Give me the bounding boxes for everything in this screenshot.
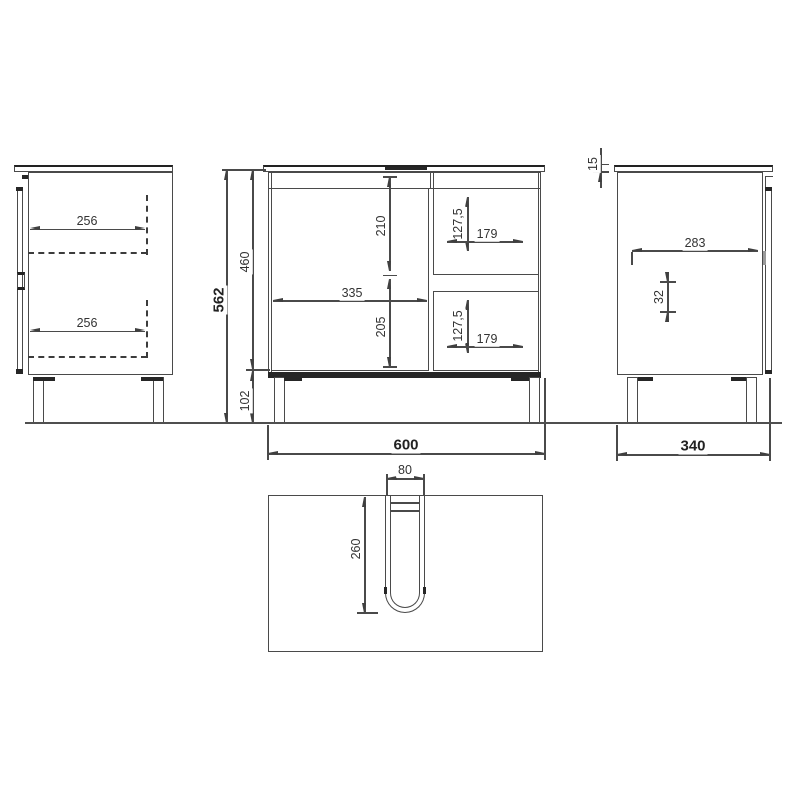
dim-arrow: [465, 343, 469, 353]
leg: [153, 377, 164, 423]
dim-label-drawer-bottom-width: 179: [475, 332, 500, 347]
dim-label-height-total: 562: [211, 285, 228, 314]
dim-arrow: [387, 177, 391, 187]
dim-arrow: [362, 603, 366, 613]
cutout-detail-line: [390, 510, 420, 511]
dim-arrow: [250, 371, 254, 381]
extension-tick: [357, 612, 378, 613]
dim-label-cutout-depth: 260: [349, 537, 364, 562]
counter-notch: [22, 175, 28, 179]
dim-line: [364, 497, 365, 613]
dim-arrow: [362, 497, 366, 507]
tap-notch: [385, 167, 427, 171]
dim-arrow: [250, 359, 254, 369]
dim-label-top-thickness: 15: [586, 155, 601, 173]
door-front: [271, 188, 429, 371]
leg: [627, 377, 638, 423]
dim-arrow: [665, 272, 669, 282]
dim-line: [389, 177, 390, 271]
leg: [33, 377, 44, 423]
leg-plate: [284, 377, 302, 381]
countertop-right: [614, 165, 773, 173]
cutout-detail-line: [390, 502, 420, 503]
dim-arrow: [135, 226, 145, 230]
dim-arrow: [135, 328, 145, 332]
extension-tick: [383, 366, 397, 367]
dim-arrow: [447, 239, 457, 243]
dim-line: [30, 331, 145, 332]
dim-arrow: [598, 172, 602, 182]
dim-arrow: [414, 476, 424, 480]
door-top-cap: [16, 187, 23, 191]
door-edge-line: [771, 190, 772, 374]
dim-arrow: [250, 170, 254, 180]
countertop-left: [14, 165, 173, 173]
dim-label-shelf-bottom: 256: [75, 316, 100, 331]
dim-arrow: [665, 312, 669, 322]
dim-line: [447, 346, 523, 347]
dim-label-depth-total: 340: [678, 438, 707, 455]
dim-label-door-width: 335: [340, 286, 365, 301]
extension-line: [769, 378, 770, 461]
technical-drawing: 256 256 562: [0, 0, 800, 800]
dim-arrow: [513, 344, 523, 348]
leg: [274, 377, 285, 423]
shelf-dashed-line: [28, 252, 147, 254]
dim-label-cutout-width: 80: [396, 463, 414, 478]
dim-line: [252, 170, 253, 423]
dim-label-drawer-bottom-height: 127,5: [451, 308, 466, 343]
dim-arrow: [268, 451, 278, 455]
dim-arrow: [465, 197, 469, 207]
dim-line: [273, 300, 427, 301]
leg-plate: [141, 377, 163, 381]
dim-label-width-total: 600: [391, 437, 420, 454]
dim-label-drawer-top-width: 179: [475, 227, 500, 242]
dim-line: [617, 454, 770, 455]
cabinet-body-right: [617, 172, 763, 375]
dim-line: [268, 453, 545, 454]
leg-plate: [33, 377, 55, 381]
dim-label-shelf-top: 256: [75, 214, 100, 229]
dim-arrow: [387, 261, 391, 271]
door-bottom-cap: [16, 369, 23, 374]
dim-line: [389, 279, 390, 367]
door-bottom-cap: [765, 370, 773, 375]
dim-arrow: [535, 451, 545, 455]
dim-arrow: [387, 279, 391, 289]
cutout-join-mark: [423, 587, 427, 594]
extension-tick: [631, 252, 632, 265]
rail-divider-line: [433, 172, 434, 188]
door-edge-line: [765, 190, 766, 374]
dim-arrow: [224, 170, 228, 180]
dim-arrow: [417, 298, 427, 302]
dim-arrow: [30, 328, 40, 332]
dim-arrow: [447, 344, 457, 348]
dim-arrow: [30, 226, 40, 230]
dim-arrow: [513, 239, 523, 243]
shelf-dashed-line: [28, 356, 147, 358]
cabinet-body-left: [28, 172, 173, 375]
dim-arrow: [760, 452, 770, 456]
dim-label-height-body: 460: [238, 250, 253, 275]
dim-arrow: [273, 298, 283, 302]
rail-divider-line: [430, 172, 431, 188]
siphon-cutout-inner: [390, 495, 420, 608]
shelf-dashed-line: [146, 300, 148, 358]
dim-line: [447, 241, 523, 242]
dim-line: [30, 229, 145, 230]
door-handle-profile: [17, 272, 25, 290]
dim-label-drawer-top-height: 127,5: [451, 206, 466, 241]
shelf-dashed-line: [146, 195, 148, 255]
dim-line: [632, 250, 758, 251]
cutout-join-mark: [384, 587, 388, 594]
dim-arrow: [465, 300, 469, 310]
cabinet-bottom-band: [268, 372, 541, 378]
dim-label-height-legs: 102: [238, 389, 253, 414]
door-handle-mark: [763, 251, 766, 265]
dim-label-door-upper: 210: [374, 214, 389, 239]
door-top-cap: [765, 187, 773, 191]
leg-plate: [511, 377, 529, 381]
extension-line: [222, 169, 266, 170]
leg: [746, 377, 757, 423]
extension-tick: [383, 275, 397, 276]
dim-arrow: [617, 452, 627, 456]
ground-line: [25, 422, 782, 424]
dim-label-depth-inner: 283: [683, 236, 708, 251]
leg-plate: [731, 377, 746, 381]
dim-arrow: [748, 248, 758, 252]
extension-line: [544, 378, 545, 460]
leg: [529, 377, 540, 423]
dim-label-door-lower: 205: [374, 315, 389, 340]
dim-arrow: [632, 248, 642, 252]
leg-plate: [638, 377, 653, 381]
dim-label-hole-spacing: 32: [652, 288, 667, 306]
